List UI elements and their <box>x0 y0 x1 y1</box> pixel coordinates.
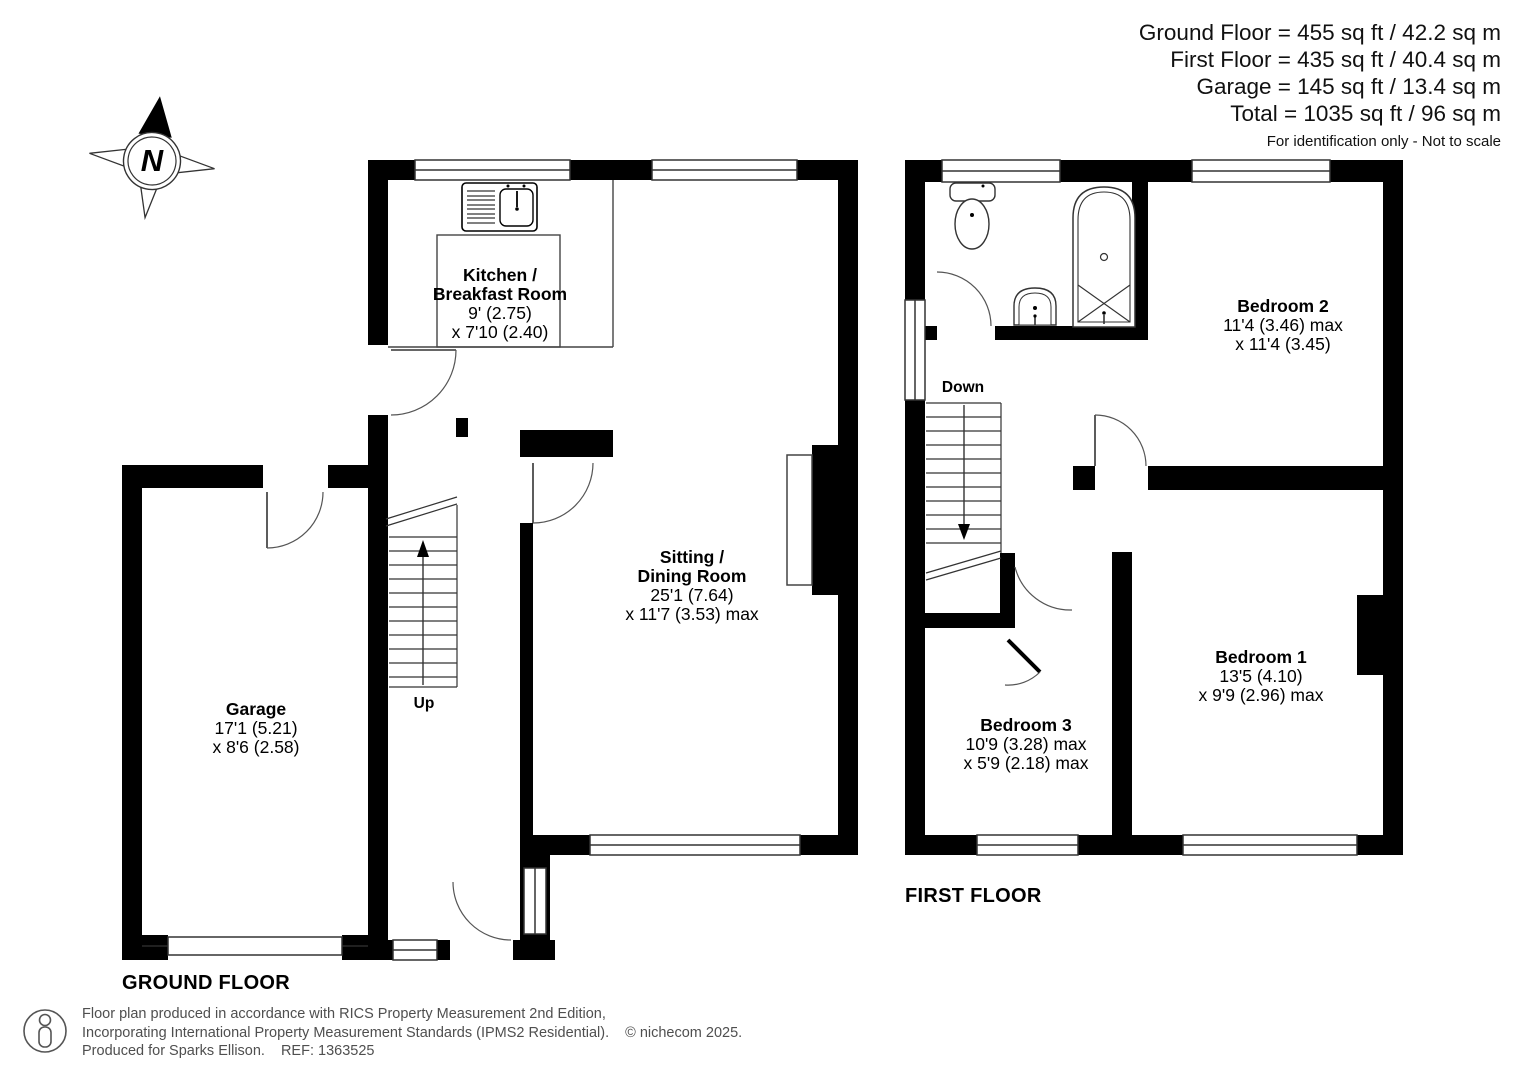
first-floor-title: FIRST FLOOR <box>905 885 1042 908</box>
stairs-down <box>926 403 1001 580</box>
bedroom3-name: Bedroom 3 <box>964 716 1089 735</box>
sitting-name-line2: Dining Room <box>625 567 758 586</box>
sitting-dim-line1: 25'1 (7.64) <box>625 586 758 605</box>
area-summary: Ground Floor = 455 sq ft / 42.2 sq m Fir… <box>1139 19 1501 150</box>
basin-icon <box>1014 288 1056 325</box>
footer-line2-row: Incorporating International Property Mea… <box>82 1024 742 1043</box>
footer-line1: Floor plan produced in accordance with R… <box>82 1005 742 1024</box>
bedroom2-dim-line2: x 11'4 (3.45) <box>1223 335 1343 354</box>
sitting-dim-line2: x 11'7 (3.53) max <box>625 605 758 624</box>
footer: Floor plan produced in accordance with R… <box>24 1005 742 1061</box>
room-label-garage: Garage 17'1 (5.21) x 8'6 (2.58) <box>213 700 300 757</box>
footer-line2: Incorporating International Property Mea… <box>82 1025 609 1041</box>
garage-dim-line2: x 8'6 (2.58) <box>213 738 300 757</box>
room-label-bedroom2: Bedroom 2 11'4 (3.46) max x 11'4 (3.45) <box>1223 297 1343 354</box>
bedroom2-dim-line1: 11'4 (3.46) max <box>1223 316 1343 335</box>
bedroom1-dim-line2: x 9'9 (2.96) max <box>1199 686 1324 705</box>
ground-floor-title: GROUND FLOOR <box>122 972 290 995</box>
bathtub-icon <box>1073 187 1135 327</box>
stairs-down-label: Down <box>942 379 984 397</box>
footer-icon-spacer <box>24 1005 70 1051</box>
garage-dim-line1: 17'1 (5.21) <box>213 719 300 738</box>
bedroom1-dim-line1: 13'5 (4.10) <box>1199 667 1324 686</box>
toilet-icon <box>950 183 995 249</box>
floorplan-drawing <box>0 0 1527 1080</box>
bedroom3-dim-line2: x 5'9 (2.18) max <box>964 754 1089 773</box>
area-line-garage: Garage = 145 sq ft / 13.4 sq m <box>1139 73 1501 100</box>
kitchen-name-line2: Breakfast Room <box>433 285 567 304</box>
bedroom3-dim-line1: 10'9 (3.28) max <box>964 735 1089 754</box>
kitchen-dim-line1: 9' (2.75) <box>433 304 567 323</box>
footer-line3: Produced for Sparks Ellison. <box>82 1043 265 1059</box>
room-label-bedroom3: Bedroom 3 10'9 (3.28) max x 5'9 (2.18) m… <box>964 716 1089 773</box>
garage-door <box>142 937 368 955</box>
footer-ref: REF: 1363525 <box>281 1043 375 1059</box>
disclaimer-text: For identification only - Not to scale <box>1139 133 1501 150</box>
fireplace-hearth <box>787 455 812 585</box>
floorplan-page: Ground Floor = 455 sq ft / 42.2 sq m Fir… <box>0 0 1527 1080</box>
sitting-name-line1: Sitting / <box>625 548 758 567</box>
kitchen-name-line1: Kitchen / <box>433 266 567 285</box>
stairs-up-label: Up <box>414 695 435 713</box>
area-line-ground: Ground Floor = 455 sq ft / 42.2 sq m <box>1139 19 1501 46</box>
room-label-sitting: Sitting / Dining Room 25'1 (7.64) x 11'7… <box>625 548 758 624</box>
footer-text: Floor plan produced in accordance with R… <box>82 1005 742 1061</box>
area-line-total: Total = 1035 sq ft / 96 sq m <box>1139 100 1501 127</box>
kitchen-sink-icon <box>462 183 537 231</box>
kitchen-dim-line2: x 7'10 (2.40) <box>433 323 567 342</box>
bedroom1-name: Bedroom 1 <box>1199 648 1324 667</box>
room-label-bedroom1: Bedroom 1 13'5 (4.10) x 9'9 (2.96) max <box>1199 648 1324 705</box>
garage-name: Garage <box>213 700 300 719</box>
bedroom2-name: Bedroom 2 <box>1223 297 1343 316</box>
area-line-first: First Floor = 435 sq ft / 40.4 sq m <box>1139 46 1501 73</box>
footer-copyright: © nichecom 2025. <box>625 1025 742 1041</box>
footer-line3-row: Produced for Sparks Ellison.REF: 1363525 <box>82 1042 742 1061</box>
stairs-up <box>386 497 457 687</box>
compass-north-letter: N <box>141 143 163 179</box>
room-label-kitchen: Kitchen / Breakfast Room 9' (2.75) x 7'1… <box>433 266 567 342</box>
